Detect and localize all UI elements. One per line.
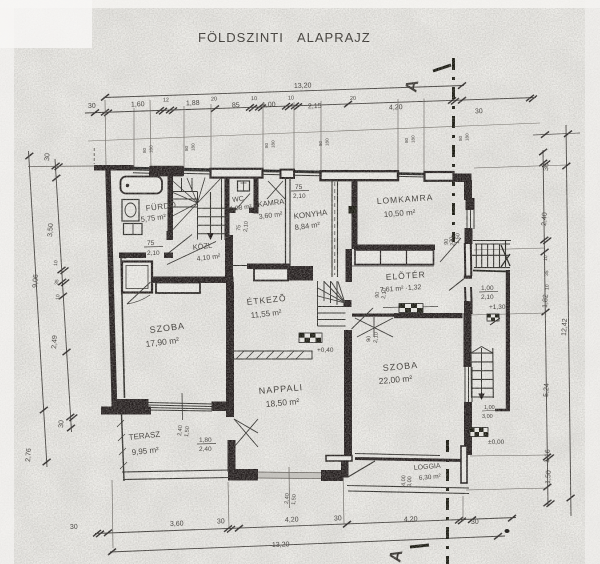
svg-text:13,20: 13,20: [272, 541, 290, 549]
svg-text:3,60: 3,60: [170, 521, 184, 528]
svg-text:FÖLDSZINTI ALAPRAJZ: FÖLDSZINTI ALAPRAJZ: [198, 30, 371, 45]
svg-text:2,40: 2,40: [199, 446, 212, 453]
svg-text:3,50: 3,50: [47, 223, 55, 237]
svg-text:35: 35: [54, 279, 60, 285]
svg-text:80: 80: [318, 140, 323, 146]
svg-text:3,00: 3,00: [407, 476, 413, 487]
svg-text:1,16: 1,16: [544, 449, 552, 463]
svg-text:±0,00: ±0,00: [488, 439, 505, 446]
svg-text:2,10: 2,10: [293, 193, 306, 200]
svg-text:+0,40: +0,40: [317, 347, 334, 354]
svg-text:1,50: 1,50: [545, 470, 553, 484]
svg-text:2,76: 2,76: [25, 448, 33, 462]
svg-text:80: 80: [264, 142, 269, 148]
svg-text:180: 180: [149, 145, 154, 153]
svg-text:12: 12: [163, 97, 169, 103]
svg-text:10: 10: [55, 294, 61, 300]
svg-text:4,20: 4,20: [404, 516, 418, 523]
svg-text:30: 30: [217, 518, 225, 525]
svg-text:80: 80: [404, 137, 409, 143]
svg-text:2,40: 2,40: [284, 493, 291, 504]
svg-text:35: 35: [544, 270, 550, 276]
svg-text:12,42: 12,42: [561, 318, 569, 336]
svg-text:2,40: 2,40: [541, 212, 549, 226]
svg-text:180: 180: [465, 133, 470, 141]
svg-text:2,15: 2,15: [308, 103, 322, 110]
svg-text:1,80: 1,80: [199, 437, 212, 444]
svg-text:30: 30: [58, 420, 66, 428]
svg-text:1,50: 1,50: [291, 494, 298, 505]
svg-text:2,10: 2,10: [147, 250, 160, 257]
svg-text:30: 30: [44, 153, 52, 161]
svg-text:10: 10: [545, 284, 551, 290]
svg-text:10: 10: [251, 96, 257, 102]
svg-text:20: 20: [211, 96, 217, 102]
svg-text:10: 10: [288, 95, 294, 101]
svg-text:80: 80: [458, 135, 463, 141]
svg-text:30: 30: [471, 519, 479, 526]
svg-text:10: 10: [53, 260, 59, 266]
svg-text:180: 180: [411, 135, 416, 143]
svg-text:75: 75: [236, 225, 243, 232]
svg-text:2,10: 2,10: [243, 221, 250, 232]
svg-text:5,24: 5,24: [543, 383, 551, 397]
svg-text:180: 180: [325, 138, 330, 146]
svg-text:75: 75: [147, 240, 155, 247]
svg-text:1,00: 1,00: [481, 285, 494, 292]
svg-text:20: 20: [121, 255, 127, 261]
svg-text:10: 10: [543, 255, 549, 261]
svg-text:180: 180: [191, 143, 196, 151]
svg-text:2,10: 2,10: [481, 294, 494, 301]
svg-text:2,10: 2,10: [373, 332, 380, 343]
svg-text:30: 30: [334, 515, 342, 522]
svg-text:30: 30: [543, 163, 550, 171]
svg-text:1,00: 1,00: [262, 102, 276, 109]
svg-text:1,82: 1,82: [542, 294, 550, 308]
svg-text:80: 80: [142, 147, 147, 153]
svg-text:9,06: 9,06: [32, 274, 40, 288]
svg-text:30: 30: [88, 103, 96, 110]
svg-text:30: 30: [475, 108, 483, 115]
svg-text:+1,30: +1,30: [489, 304, 506, 311]
svg-text:2,49: 2,49: [51, 335, 59, 349]
svg-text:20: 20: [350, 96, 356, 102]
svg-text:85: 85: [232, 102, 240, 109]
svg-text:1,88: 1,88: [186, 100, 200, 107]
svg-text:13,20: 13,20: [294, 82, 312, 90]
svg-text:WC: WC: [232, 196, 244, 204]
svg-text:180: 180: [271, 140, 276, 148]
svg-text:4,20: 4,20: [285, 517, 299, 524]
svg-text:30: 30: [70, 524, 78, 531]
svg-text:4,20: 4,20: [389, 104, 403, 111]
svg-text:1,60: 1,60: [131, 101, 145, 108]
svg-text:3,00: 3,00: [482, 414, 493, 420]
svg-text:90: 90: [366, 336, 373, 343]
svg-text:80: 80: [184, 145, 189, 151]
svg-text:75: 75: [295, 184, 303, 191]
svg-text:1,50: 1,50: [455, 233, 462, 244]
